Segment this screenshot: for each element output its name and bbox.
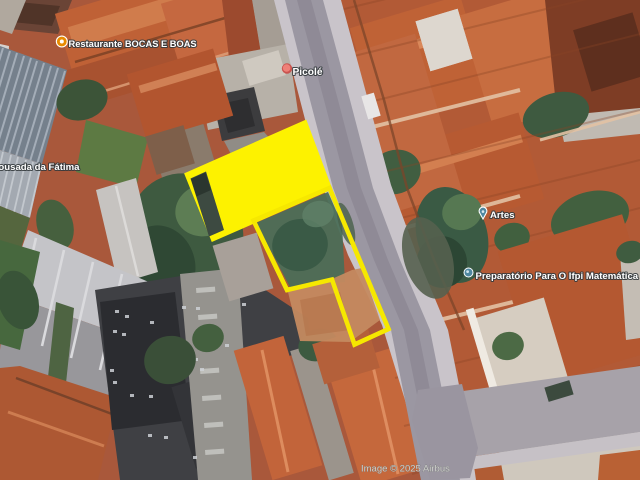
svg-text:Picolé: Picolé <box>293 67 323 78</box>
svg-text:Pousada da Fátima: Pousada da Fátima <box>0 162 80 173</box>
svg-text:Preparatório Para O Ifpi Matem: Preparatório Para O Ifpi Matemática P <box>476 271 640 282</box>
svg-text:Artes: Artes <box>490 210 515 221</box>
svg-text:Restaurante BOCAS E BOAS: Restaurante BOCAS E BOAS <box>69 39 197 49</box>
svg-text:Image © 2025 Airbus: Image © 2025 Airbus <box>361 464 450 475</box>
